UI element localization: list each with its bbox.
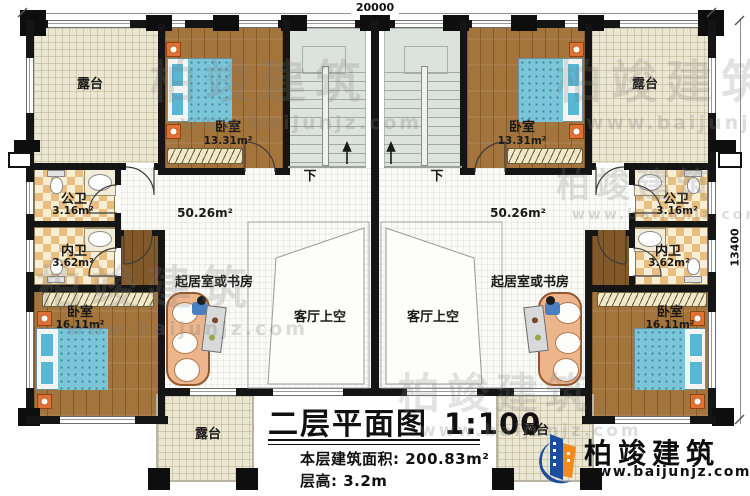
toilet-tank	[47, 170, 65, 177]
wall	[115, 163, 121, 185]
hall-area-label: 50.26m²	[177, 207, 233, 220]
closet-bottom-right	[597, 292, 707, 307]
toilet-tank	[684, 170, 702, 177]
wall	[560, 388, 590, 396]
stair-rail-right	[421, 66, 428, 166]
window	[26, 312, 34, 388]
room-label-terrace: 露台	[195, 428, 221, 442]
window	[708, 240, 716, 272]
room-label-living-study: 起居室或书房	[491, 276, 569, 290]
meter-box	[8, 152, 32, 168]
person-head	[546, 296, 555, 305]
stairs-down-label: 下	[303, 170, 316, 184]
wall	[154, 163, 165, 170]
pillow	[567, 63, 580, 87]
sofa-cushion	[553, 358, 579, 382]
room-label-living-study: 起居室或书房	[175, 276, 253, 290]
floor-height-value: 3.2m	[343, 472, 387, 490]
sink-basin	[88, 174, 112, 191]
room-label-terrace: 露台	[632, 78, 658, 92]
wall	[592, 230, 598, 236]
window	[190, 388, 236, 396]
column	[710, 140, 736, 152]
wall	[26, 285, 165, 292]
closet-top-right	[507, 148, 583, 164]
wall	[115, 276, 121, 290]
floor-area-value: 200.83m²	[405, 450, 489, 468]
column	[14, 140, 40, 152]
room-area-bedroom: 16.11m²	[646, 320, 695, 332]
room-area-private-bath: 3.62m²	[52, 258, 93, 270]
window	[26, 240, 34, 272]
stair-edge	[384, 166, 462, 168]
sofa-cushion	[174, 358, 200, 382]
corridor-right-floor	[592, 230, 629, 290]
floor-height-label: 层高:	[300, 472, 338, 490]
window	[514, 388, 560, 396]
wall	[158, 168, 245, 175]
floor-area-label: 本层建筑面积:	[300, 450, 400, 468]
column	[213, 15, 239, 31]
window	[395, 20, 450, 28]
hall-area-label: 50.26m²	[490, 207, 546, 220]
wall	[629, 276, 635, 290]
toilet-tank	[684, 276, 702, 283]
party-wall	[371, 20, 379, 396]
wall	[477, 388, 514, 396]
floor-height-line: 层高: 3.2m	[300, 470, 387, 491]
mattress	[519, 59, 563, 122]
room-label-bedroom: 卧室	[215, 121, 241, 135]
bed-top-right	[518, 58, 583, 122]
stairs-down-label: 下	[430, 170, 443, 184]
title-block: 二层平面图1:100	[268, 399, 541, 443]
mattress	[635, 329, 685, 390]
pillow	[171, 92, 184, 116]
toilet-tank	[47, 276, 65, 283]
pillow	[689, 333, 703, 357]
wall	[629, 163, 635, 185]
window	[708, 182, 716, 214]
stair-rail-left	[322, 66, 329, 166]
nightstand	[37, 394, 52, 409]
wall	[158, 24, 165, 170]
nightstand	[166, 124, 181, 139]
room-area-bedroom: 13.31m²	[498, 136, 547, 148]
corridor-left-floor	[121, 230, 158, 290]
bed-top-left	[167, 58, 232, 122]
window	[48, 20, 130, 28]
wall	[160, 388, 190, 396]
wall	[460, 20, 467, 175]
window	[273, 388, 343, 396]
floor-area-line: 本层建筑面积: 200.83m²	[300, 448, 489, 469]
window	[615, 416, 690, 424]
column	[148, 468, 170, 490]
room-area-bedroom: 16.11m²	[56, 320, 105, 332]
nightstand	[37, 311, 52, 326]
window	[407, 388, 477, 396]
mattress	[58, 329, 108, 390]
window	[26, 58, 34, 113]
room-area-public-bath: 3.16m²	[52, 206, 93, 218]
wall	[585, 285, 716, 292]
wall	[34, 163, 126, 170]
window	[60, 416, 135, 424]
window	[300, 20, 355, 28]
sink-basin	[88, 231, 112, 247]
room-label-living-void: 客厅上空	[294, 311, 346, 325]
nightstand	[166, 42, 181, 57]
wall	[505, 168, 592, 175]
terrace-top-right-floor	[592, 28, 708, 163]
room-area-private-bath: 3.62m²	[648, 258, 689, 270]
wall	[635, 221, 708, 227]
pillow	[171, 63, 184, 87]
stair-edge	[288, 166, 366, 168]
mattress	[188, 59, 232, 122]
room-label-terrace: 露台	[77, 78, 103, 92]
closet-top-left	[167, 148, 243, 164]
plan-scale: 1:100	[444, 407, 541, 441]
wall	[343, 388, 407, 396]
nightstand	[569, 42, 584, 57]
column	[511, 15, 537, 31]
company-website: www.baijunjz.com	[584, 464, 750, 480]
room-label-living-void: 客厅上空	[407, 311, 459, 325]
dimension-top: 20000	[351, 1, 399, 14]
nightstand	[690, 394, 705, 409]
column	[236, 468, 258, 490]
title-underline	[268, 444, 480, 445]
room-area-bedroom: 13.31m²	[204, 136, 253, 148]
column	[492, 468, 514, 490]
dimension-right: 13400	[729, 225, 742, 271]
window	[708, 312, 716, 388]
pillow	[40, 361, 54, 385]
closet-bottom-left	[42, 292, 154, 307]
wall	[236, 388, 273, 396]
sink-basin	[638, 174, 662, 191]
sofa-cushion	[172, 332, 198, 354]
wall	[585, 163, 596, 170]
sofa-cushion	[555, 332, 581, 354]
plan-title: 二层平面图	[268, 407, 428, 442]
wall	[585, 24, 592, 170]
wall	[115, 230, 124, 236]
window	[620, 20, 702, 28]
pillow	[567, 92, 580, 116]
wall	[283, 20, 290, 175]
dimension-line-right	[740, 20, 741, 424]
terrace-top-left-floor	[34, 28, 158, 163]
wall	[34, 221, 115, 227]
pillow	[40, 333, 54, 357]
meter-box	[718, 152, 742, 168]
nightstand	[569, 124, 584, 139]
window	[708, 58, 716, 113]
room-area-public-bath: 3.16m²	[656, 206, 697, 218]
wall	[624, 163, 708, 170]
window	[26, 182, 34, 214]
room-label-bedroom: 卧室	[509, 121, 535, 135]
floor-plan: 露台 露台 卧室 13.31m² 卧室 13.31m² 下 下 公卫 3.16m…	[0, 0, 750, 496]
person-head	[197, 296, 206, 305]
title-underline	[268, 439, 480, 441]
pillow	[689, 361, 703, 385]
wall	[626, 230, 635, 236]
bed-bottom-right	[634, 328, 706, 390]
bed-bottom-left	[36, 328, 108, 390]
